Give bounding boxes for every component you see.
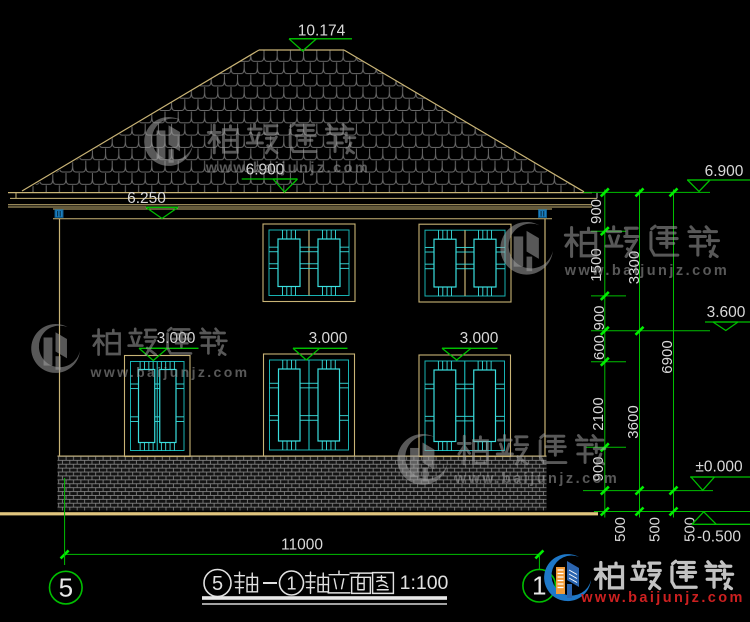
svg-text:5: 5 xyxy=(212,573,223,595)
svg-text:6.250: 6.250 xyxy=(127,190,166,207)
svg-text:3600: 3600 xyxy=(625,405,642,438)
svg-text:±0.000: ±0.000 xyxy=(695,459,743,476)
svg-text:11000: 11000 xyxy=(281,537,323,554)
svg-text:500: 500 xyxy=(647,517,664,542)
svg-text:www.baijunjz.com: www.baijunjz.com xyxy=(580,590,745,606)
svg-text:500: 500 xyxy=(612,517,629,542)
svg-text:3.000: 3.000 xyxy=(309,330,348,347)
svg-text:600: 600 xyxy=(591,335,608,360)
svg-text:6900: 6900 xyxy=(659,340,676,373)
svg-text:3.000: 3.000 xyxy=(460,330,499,347)
svg-text:1: 1 xyxy=(286,574,296,594)
svg-text:6.900: 6.900 xyxy=(705,163,744,180)
svg-text:1:100: 1:100 xyxy=(400,572,449,594)
svg-text:www.baijunjz.com: www.baijunjz.com xyxy=(90,364,250,380)
svg-text:3.600: 3.600 xyxy=(707,304,746,321)
svg-text:900: 900 xyxy=(588,199,605,224)
svg-text:www.baijunjz.com: www.baijunjz.com xyxy=(454,471,620,487)
svg-text:5: 5 xyxy=(59,573,73,603)
svg-text:www.baijunjz.com: www.baijunjz.com xyxy=(205,161,371,177)
svg-text:-0.500: -0.500 xyxy=(697,529,741,546)
svg-text:10.174: 10.174 xyxy=(298,23,346,40)
svg-text:1: 1 xyxy=(532,571,546,601)
svg-text:www.baijunjz.com: www.baijunjz.com xyxy=(564,263,730,279)
svg-text:2100: 2100 xyxy=(590,397,607,430)
svg-text:900: 900 xyxy=(591,305,608,330)
